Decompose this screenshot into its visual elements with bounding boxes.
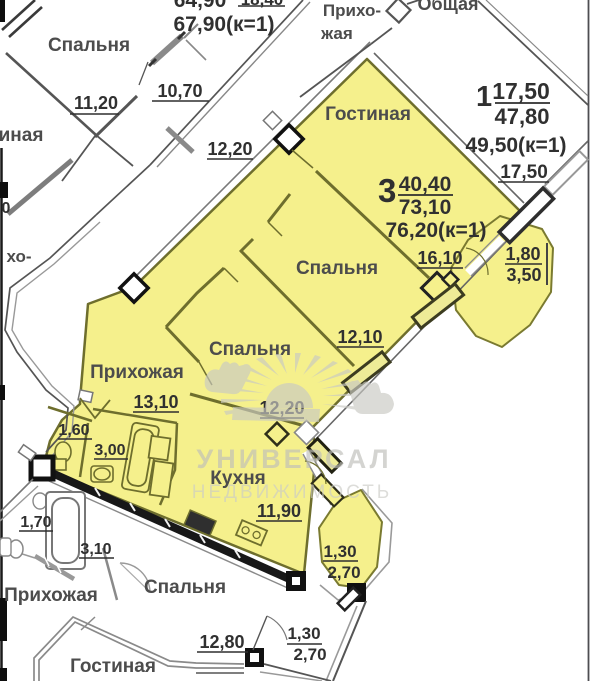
svg-text:64,90: 64,90 [174, 0, 227, 12]
svg-text:12,20: 12,20 [207, 139, 252, 159]
svg-text:1: 1 [476, 81, 492, 113]
svg-text:73,10: 73,10 [399, 196, 452, 219]
svg-text:76,20(к=1): 76,20(к=1) [386, 219, 487, 242]
svg-text:Гостиная: Гостиная [325, 104, 411, 125]
svg-text:13,10: 13,10 [133, 392, 178, 412]
svg-text:47,80: 47,80 [494, 104, 549, 129]
svg-text:Прихожая: Прихожая [4, 585, 98, 606]
svg-text:жая: жая [320, 24, 353, 43]
svg-text:2,70: 2,70 [327, 563, 360, 582]
svg-text:3,50: 3,50 [506, 265, 541, 285]
svg-text:18,40: 18,40 [241, 0, 284, 9]
svg-text:Общая: Общая [417, 0, 478, 14]
svg-text:хо-: хо- [6, 247, 31, 266]
svg-text:Прихо-: Прихо- [323, 1, 381, 20]
svg-text:3,00: 3,00 [94, 442, 125, 459]
svg-text:Спальня: Спальня [296, 258, 378, 279]
svg-text:11,20: 11,20 [74, 93, 118, 113]
svg-text:11,90: 11,90 [257, 501, 301, 521]
svg-text:1,30: 1,30 [323, 542, 356, 561]
svg-text:УНИВЕРСАЛ: УНИВЕРСАЛ [196, 444, 391, 474]
svg-text:3,10: 3,10 [80, 541, 111, 558]
svg-text:10,70: 10,70 [157, 81, 202, 101]
svg-text:иная: иная [0, 125, 43, 146]
svg-text:49,50(к=1): 49,50(к=1) [466, 134, 567, 157]
svg-text:Гостиная: Гостиная [70, 656, 156, 677]
svg-text:12,80: 12,80 [199, 632, 244, 652]
svg-text:16,10: 16,10 [417, 248, 462, 268]
svg-text:17,50: 17,50 [500, 162, 548, 183]
svg-text:1,30: 1,30 [287, 624, 320, 643]
svg-text:Спальня: Спальня [144, 577, 226, 598]
svg-text:12,10: 12,10 [337, 327, 382, 347]
svg-text:1,70: 1,70 [20, 514, 51, 531]
svg-text:40,40: 40,40 [399, 173, 452, 196]
svg-text:1,80: 1,80 [505, 244, 540, 264]
svg-text:Прихожая: Прихожая [90, 362, 184, 383]
svg-text:0: 0 [2, 200, 11, 217]
svg-text:НЕДВИЖИМОСТЬ: НЕДВИЖИМОСТЬ [192, 482, 393, 503]
svg-text:2,70: 2,70 [293, 645, 326, 664]
svg-text:3: 3 [378, 172, 396, 209]
svg-text:17,50: 17,50 [492, 78, 550, 104]
svg-text:67,90(к=1): 67,90(к=1) [174, 13, 275, 36]
svg-text:1,60: 1,60 [58, 422, 89, 439]
svg-text:Спальня: Спальня [48, 35, 130, 56]
